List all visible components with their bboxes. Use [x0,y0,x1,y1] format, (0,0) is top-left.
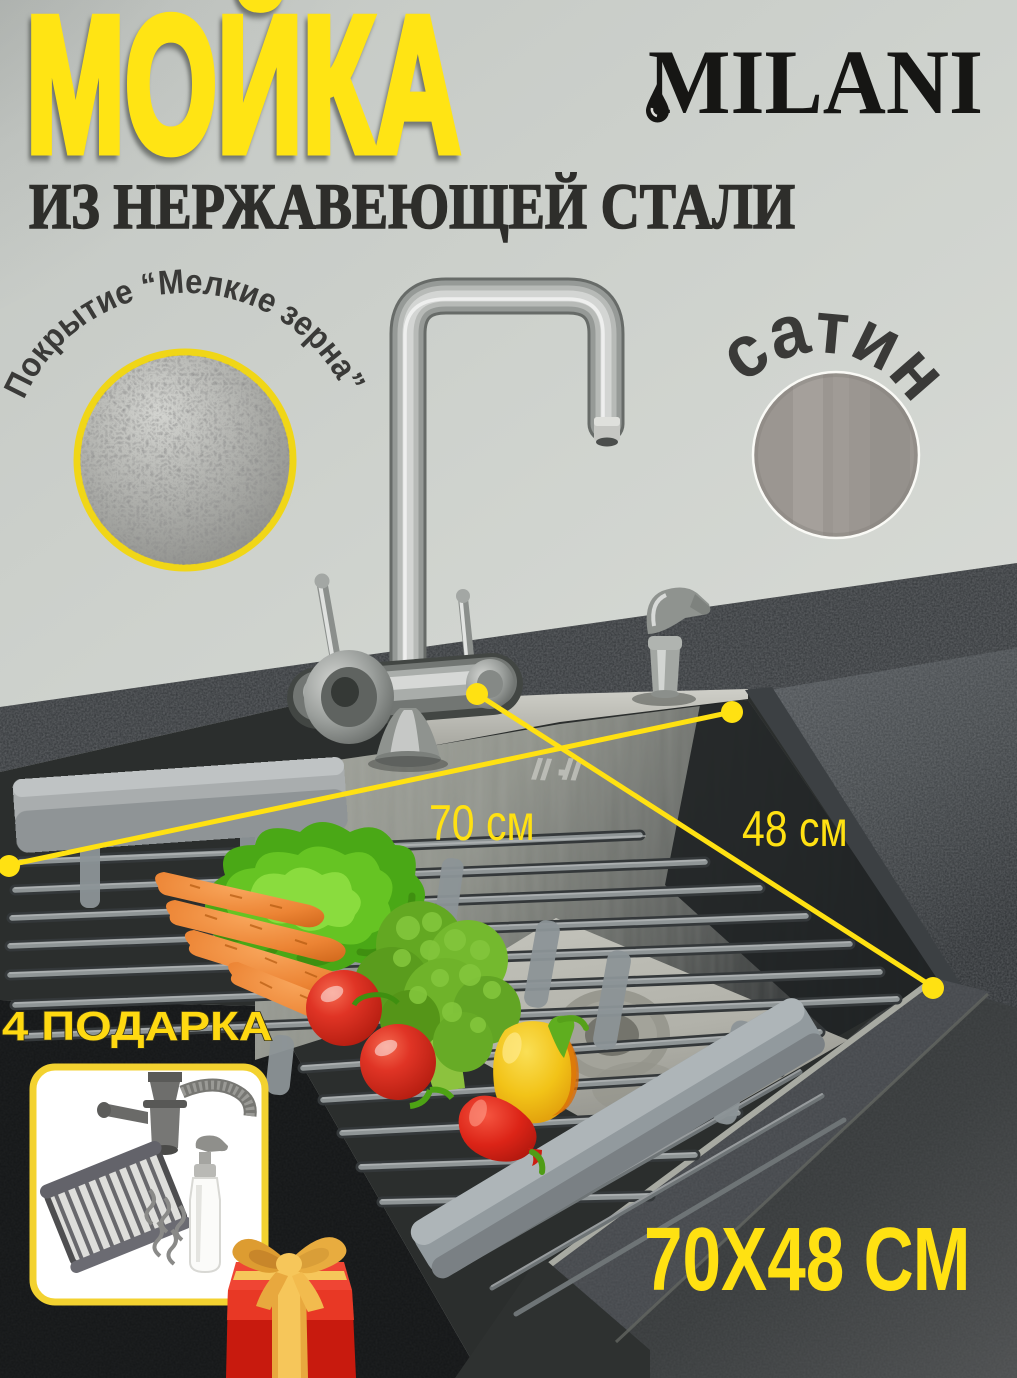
svg-text:MILANI: MILANI [648,31,983,133]
svg-text:70 см: 70 см [429,795,535,851]
svg-text:МОЙКА: МОЙКА [26,0,461,192]
svg-text:ИЗ НЕРЖАВЕЮЩЕЙ СТАЛИ: ИЗ НЕРЖАВЕЮЩЕЙ СТАЛИ [29,171,795,243]
svg-text:48 см: 48 см [742,801,848,857]
svg-text:70X48 СМ: 70X48 СМ [644,1209,970,1310]
svg-text:4 ПОДАРКА: 4 ПОДАРКА [2,1003,273,1049]
